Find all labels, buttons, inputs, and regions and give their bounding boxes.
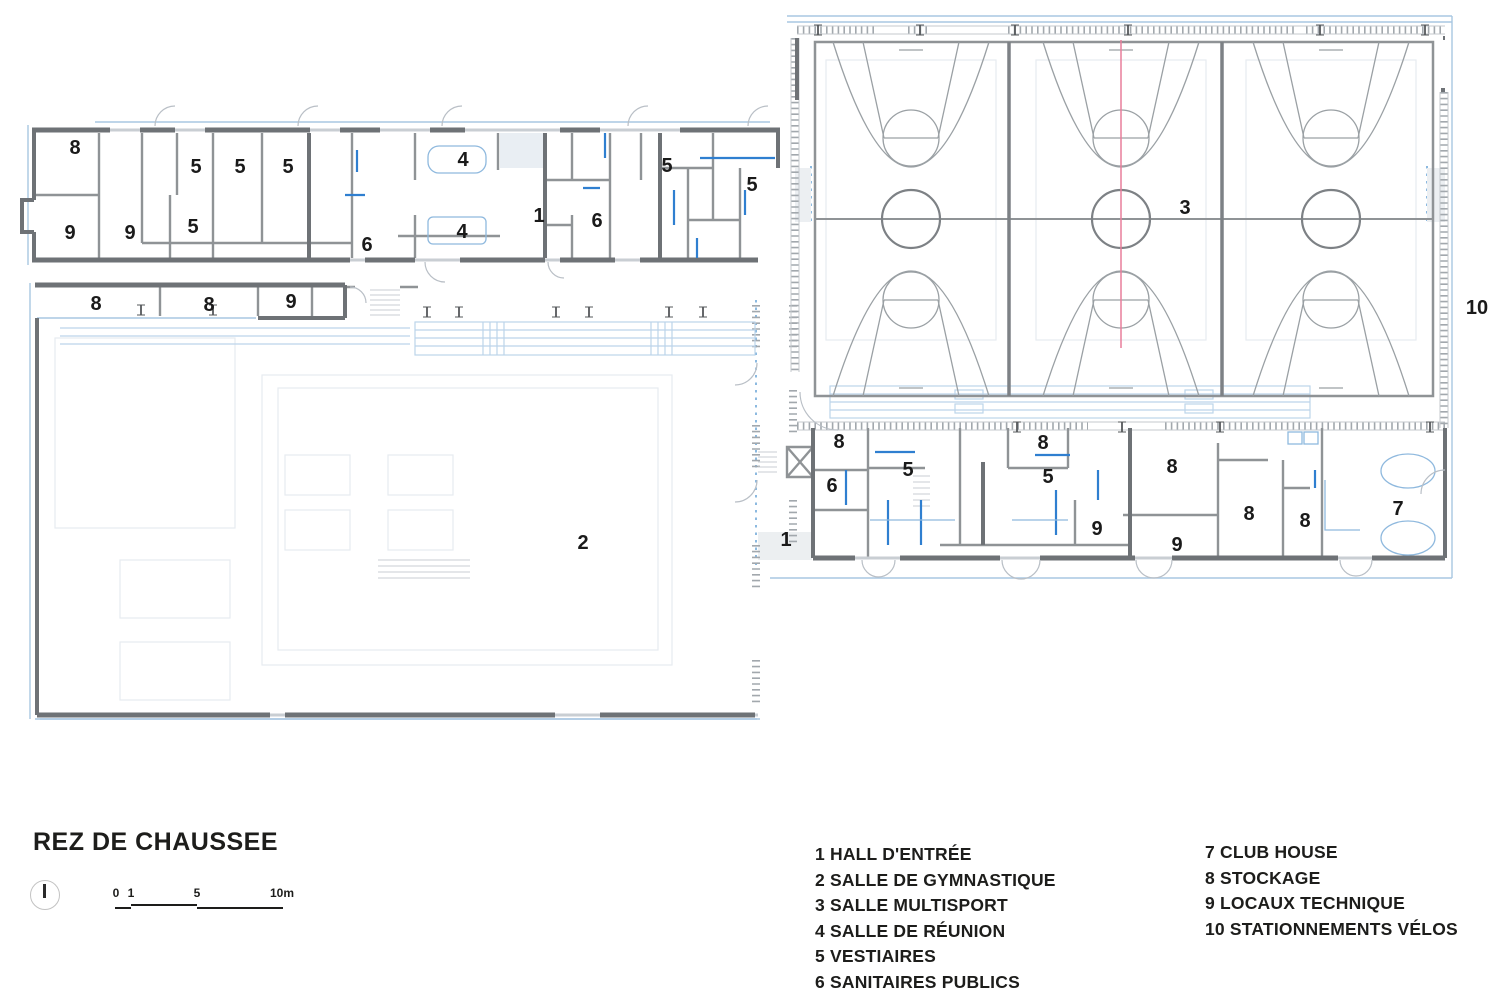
north-arrow-needle xyxy=(43,884,46,898)
room-label: 5 xyxy=(661,156,672,176)
legend-item: 9 LOCAUX TECHNIQUE xyxy=(1205,891,1458,917)
room-label: 7 xyxy=(1392,499,1403,519)
faint-equipment-outlines xyxy=(55,60,1416,700)
room-label: 6 xyxy=(591,211,602,231)
room-label: 5 xyxy=(1042,467,1053,487)
scale-tick-label: 1 xyxy=(128,886,135,900)
room-label: 1 xyxy=(780,530,791,550)
room-label: 2 xyxy=(577,533,588,553)
scale-tick-label: 10m xyxy=(270,886,294,900)
room-label: 8 xyxy=(833,432,844,452)
room-label: 5 xyxy=(902,460,913,480)
column-symbols xyxy=(137,25,1434,432)
stairs xyxy=(370,290,930,578)
legend-item: 4 SALLE DE RÉUNION xyxy=(815,919,1056,945)
scale-bar-segment xyxy=(115,907,131,909)
room-label: 9 xyxy=(1091,519,1102,539)
room-label: 8 xyxy=(90,294,101,314)
room-label: 9 xyxy=(64,223,75,243)
hatched-wall-borders xyxy=(791,26,1448,430)
legend-item: 7 CLUB HOUSE xyxy=(1205,840,1458,866)
legend-item: 6 SANITAIRES PUBLICS xyxy=(815,970,1056,996)
room-label: 4 xyxy=(456,222,467,242)
floor-plan-sheet: 8 5 5 5 4 9 9 5 6 4 1 6 5 5 8 8 9 2 3 10… xyxy=(0,0,1500,1000)
bleachers xyxy=(60,322,1310,418)
legend-column-2: 7 CLUB HOUSE 8 STOCKAGE 9 LOCAUX TECHNIQ… xyxy=(1205,840,1458,942)
room-label: 8 xyxy=(69,138,80,158)
room-label: 5 xyxy=(282,157,293,177)
scale-bar-segment xyxy=(131,904,197,906)
room-label: 9 xyxy=(124,223,135,243)
room-label: 9 xyxy=(285,292,296,312)
legend-item: 5 VESTIAIRES xyxy=(815,944,1056,970)
room-label: 9 xyxy=(1171,535,1182,555)
legend-column-1: 1 HALL D'ENTRÉE 2 SALLE DE GYMNASTIQUE 3… xyxy=(815,842,1056,995)
scale-bar-segment xyxy=(197,907,283,909)
hatched-walls xyxy=(756,30,1445,705)
entry-mat-top xyxy=(500,133,545,168)
legend-item: 2 SALLE DE GYMNASTIQUE xyxy=(815,868,1056,894)
room-label: 5 xyxy=(746,175,757,195)
legend-item: 3 SALLE MULTISPORT xyxy=(815,893,1056,919)
legend-item: 10 STATIONNEMENTS VÉLOS xyxy=(1205,917,1458,943)
page-title: REZ DE CHAUSSEE xyxy=(33,828,278,857)
room-label: 10 xyxy=(1466,298,1488,318)
room-label: 8 xyxy=(1243,504,1254,524)
legend-item: 8 STOCKAGE xyxy=(1205,866,1458,892)
room-label: 5 xyxy=(234,157,245,177)
room-label: 8 xyxy=(203,295,214,315)
room-label: 6 xyxy=(361,235,372,255)
room-label: 1 xyxy=(533,206,544,226)
room-label: 5 xyxy=(187,217,198,237)
legend-item: 1 HALL D'ENTRÉE xyxy=(815,842,1056,868)
room-label: 8 xyxy=(1299,511,1310,531)
room-label: 8 xyxy=(1166,457,1177,477)
scale-tick-label: 5 xyxy=(194,886,201,900)
exterior-glazing-lines xyxy=(28,16,1452,719)
room-label: 5 xyxy=(190,157,201,177)
room-label: 8 xyxy=(1037,433,1048,453)
room-label: 4 xyxy=(457,150,468,170)
room-label: 3 xyxy=(1179,198,1190,218)
scale-tick-label: 0 xyxy=(113,886,120,900)
room-label: 6 xyxy=(826,476,837,496)
